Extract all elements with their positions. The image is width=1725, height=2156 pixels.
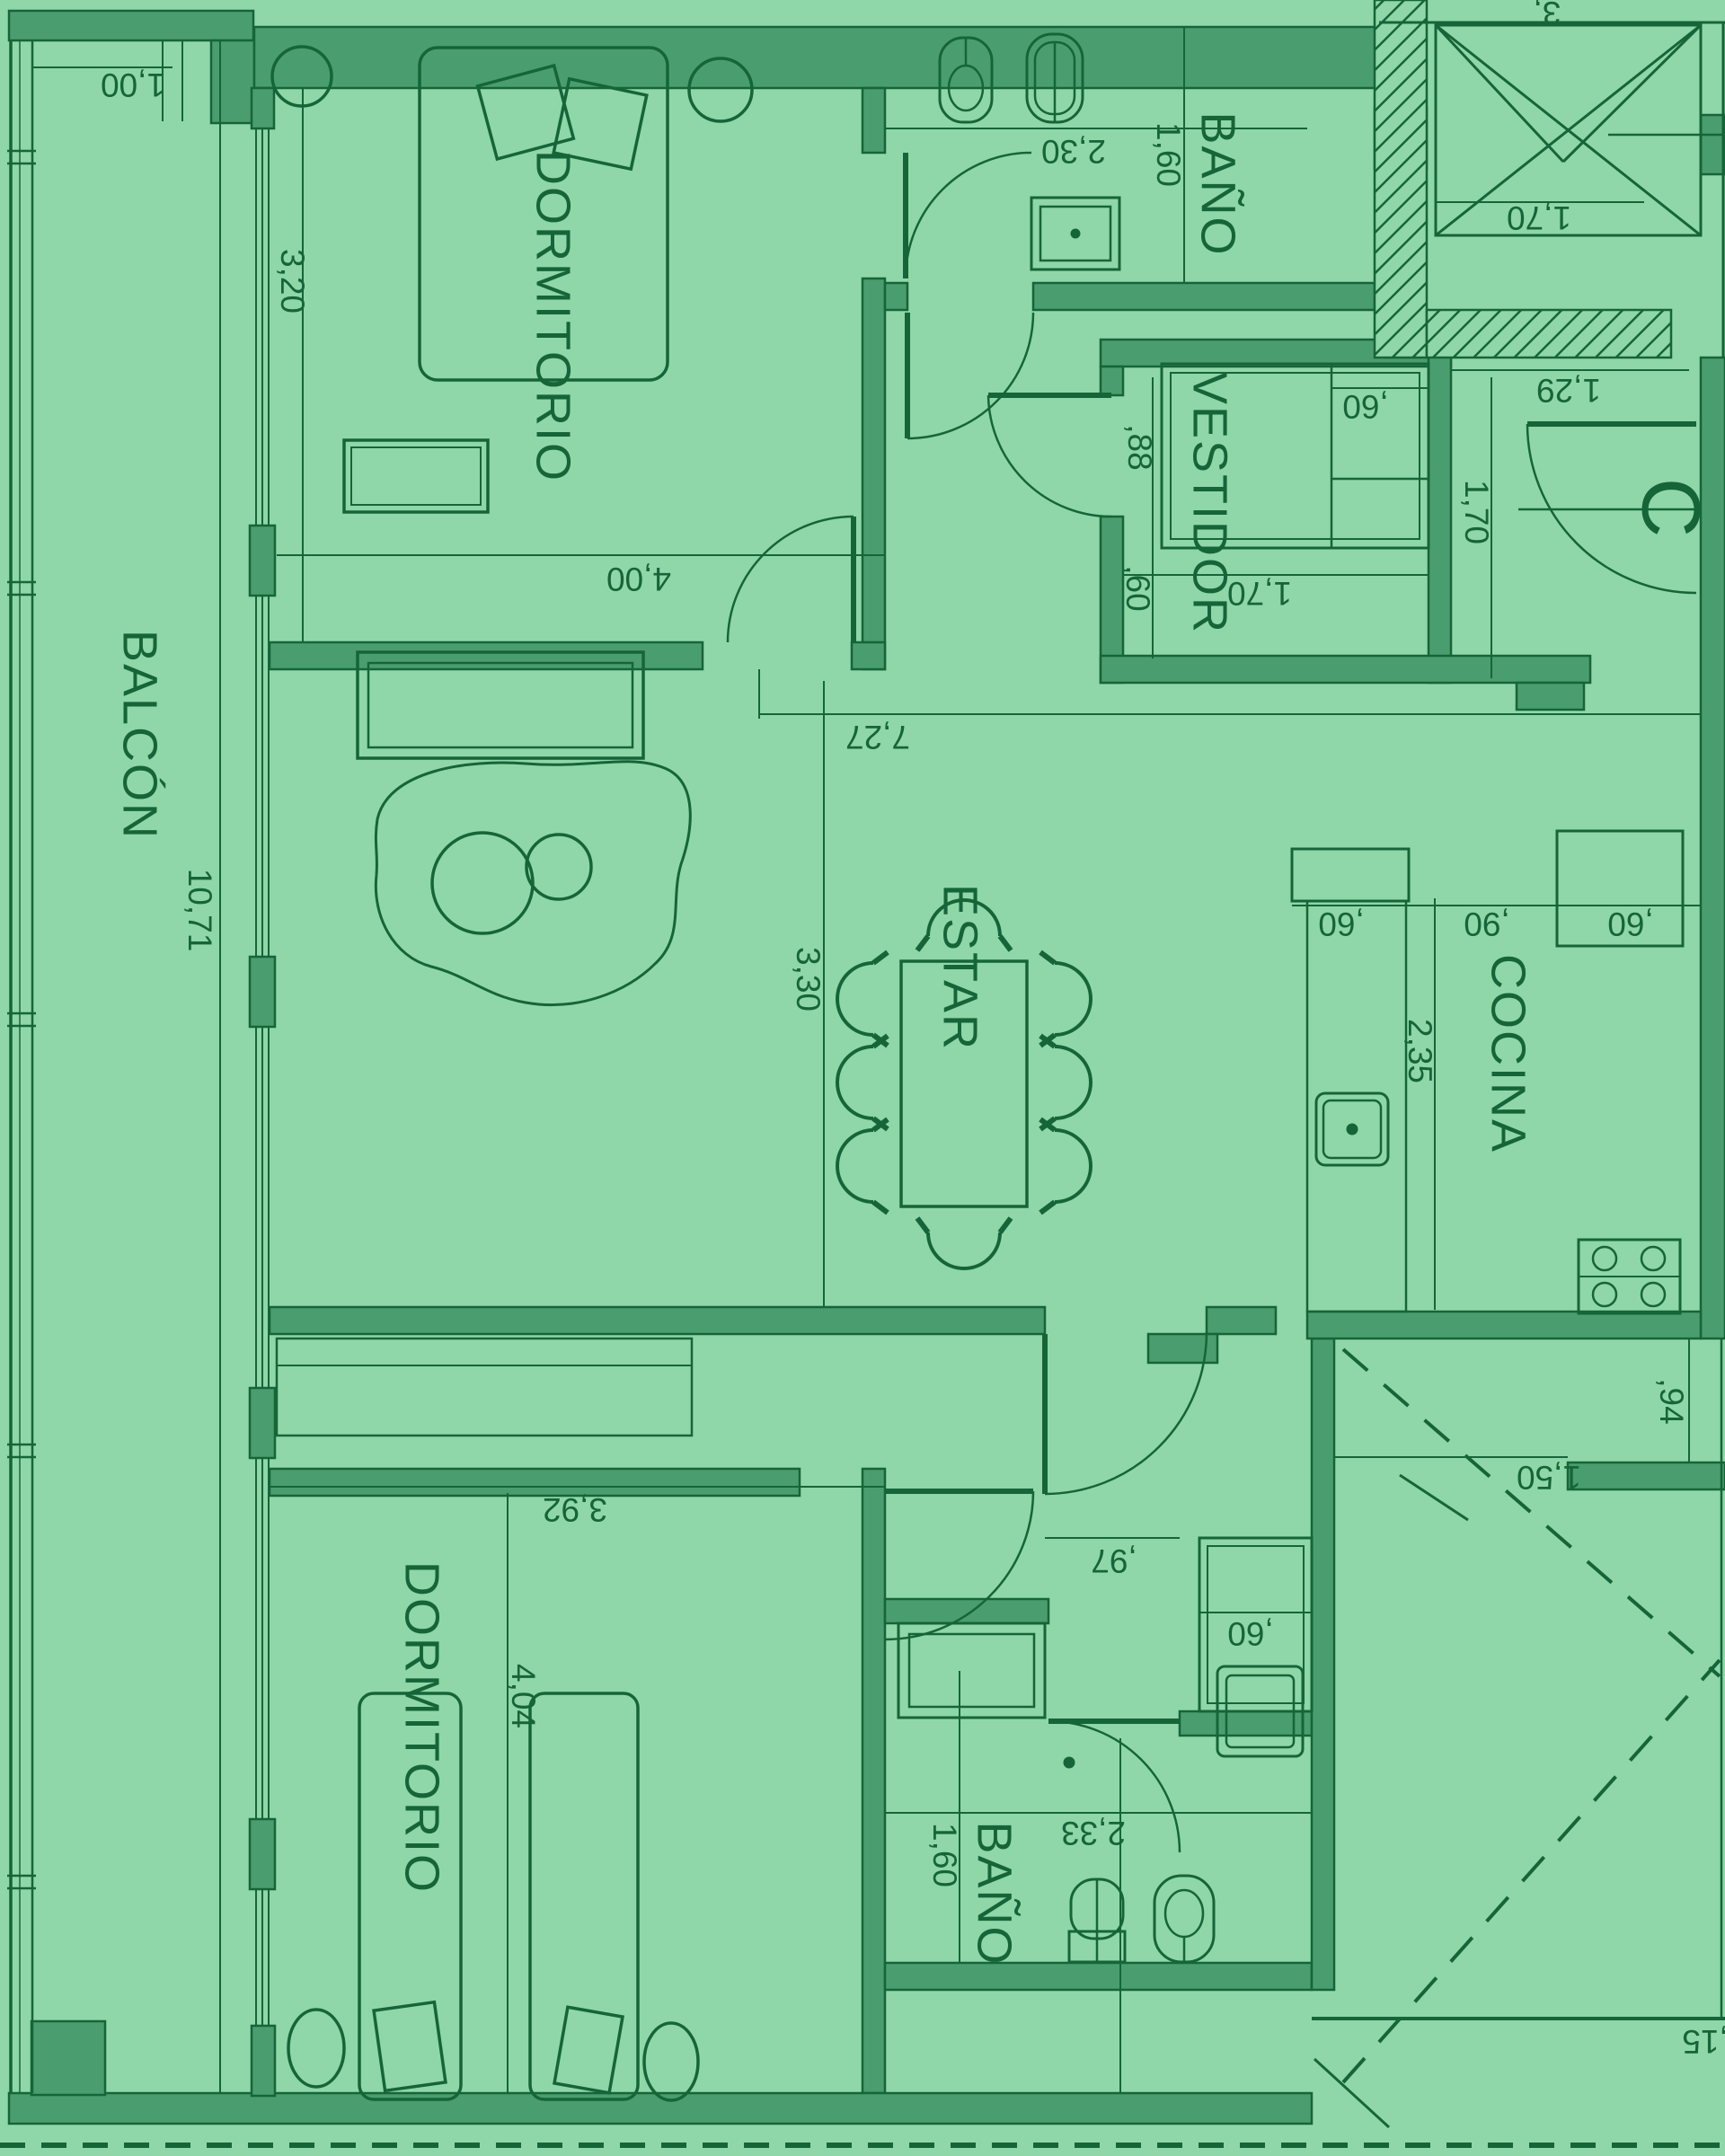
- dim-88: ,88: [1121, 424, 1158, 470]
- dim-2-35: 2,35: [1402, 1019, 1438, 1083]
- dim-10-71: 10,71: [181, 869, 218, 952]
- dim-60-vestidor-left: ,60: [1119, 565, 1156, 611]
- floor-plan-page: BALCÓN DORMITORIO BAÑO VESTIDOR ESTAR CO…: [0, 0, 1725, 2156]
- dim-2-33: 2,33: [1061, 1815, 1126, 1851]
- floor-plan-svg: BALCÓN DORMITORIO BAÑO VESTIDOR ESTAR CO…: [0, 0, 1725, 2156]
- dim-3-20: 3,20: [274, 249, 311, 314]
- dim-3-top: 3,: [1534, 0, 1561, 31]
- room-label-balcon: BALCÓN: [113, 630, 167, 840]
- dim-94: ,94: [1653, 1378, 1690, 1424]
- dim-7-27: 7,27: [845, 719, 910, 755]
- dim-1-60-bottom: 1,60: [926, 1823, 963, 1887]
- dim-60-kitchen-right: ,60: [1607, 906, 1653, 942]
- unit-letter-c: C: [1625, 478, 1717, 537]
- room-label-dormitorio-bottom: DORMITORIO: [395, 1561, 449, 1894]
- dim-60-vestidor-closet: ,60: [1342, 388, 1388, 425]
- dim-4-04: 4,04: [505, 1664, 542, 1728]
- dim-1-70-entry: 1,70: [1458, 480, 1495, 544]
- dim-3-92: 3,92: [543, 1491, 607, 1528]
- dim-15: ,15: [1682, 2023, 1725, 2060]
- dim-1-70-stair: 1,70: [1507, 199, 1571, 236]
- dim-97: ,97: [1091, 1542, 1137, 1579]
- room-label-bano-top: BAÑO: [1191, 111, 1245, 256]
- dim-3-30: 3,30: [790, 947, 827, 1012]
- dim-1-70-vestidor: 1,70: [1227, 575, 1292, 612]
- dim-1-60-top: 1,60: [1150, 122, 1187, 187]
- dim-60-closet: ,60: [1227, 1615, 1273, 1652]
- room-label-bano-bottom: BAÑO: [968, 1821, 1022, 1966]
- dim-1-29: 1,29: [1536, 372, 1601, 409]
- dim-1-00: 1,00: [101, 66, 165, 103]
- dim-1-50: 1,50: [1517, 1459, 1581, 1496]
- dim-90-kitchen: ,90: [1464, 906, 1509, 942]
- dim-4-00: 4,00: [606, 561, 671, 597]
- dim-2-30: 2,30: [1041, 133, 1106, 170]
- dim-60-kitchen-left: ,60: [1318, 906, 1364, 942]
- room-label-estar: ESTAR: [933, 884, 987, 1051]
- room-label-cocina: COCINA: [1482, 954, 1535, 1153]
- room-label-dormitorio-top: DORMITORIO: [526, 150, 580, 482]
